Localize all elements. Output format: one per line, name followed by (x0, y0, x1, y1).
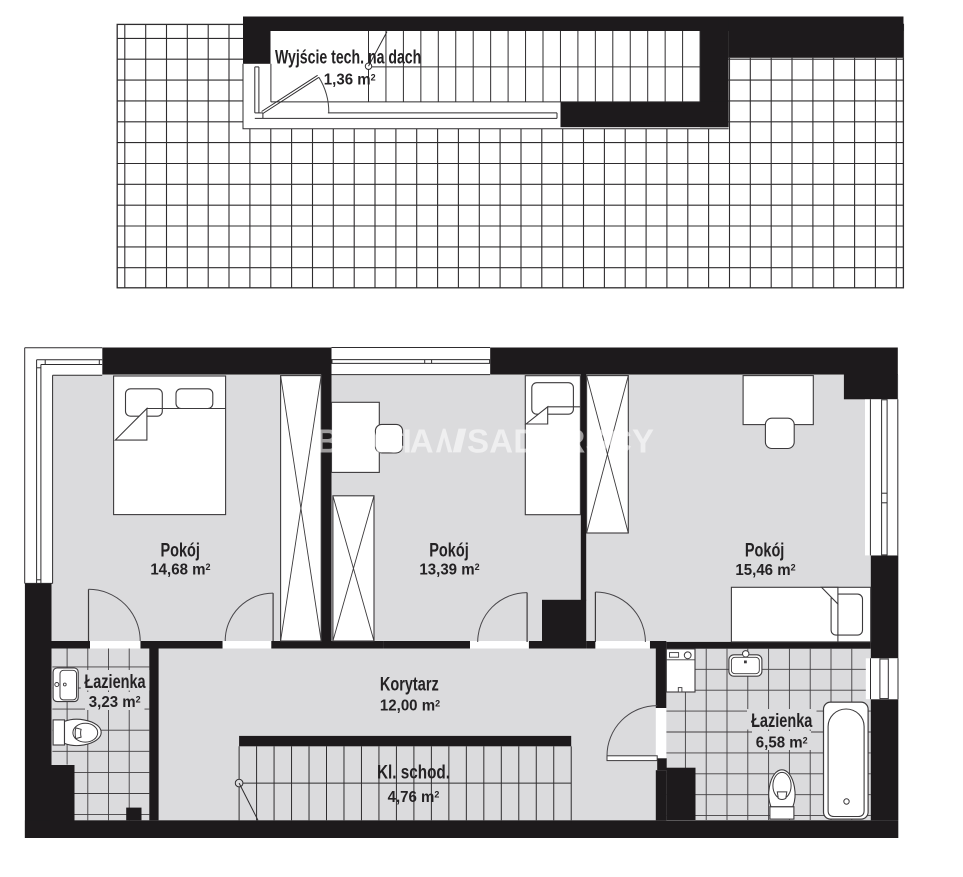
svg-text:Łazienka: Łazienka (751, 709, 813, 732)
svg-text:BRACIA: BRACIA (316, 422, 434, 459)
svg-text:1,36 m2: 1,36 m2 (324, 71, 376, 89)
svg-text:Pokój: Pokój (429, 538, 468, 561)
svg-text:Pokój: Pokój (745, 538, 784, 561)
svg-text:3,23 m2: 3,23 m2 (89, 693, 141, 711)
svg-text:Pokój: Pokój (160, 538, 199, 561)
svg-text:Wyjście tech. na dach: Wyjście tech. na dach (275, 46, 421, 68)
svg-text:Łazienka: Łazienka (84, 670, 146, 693)
svg-text:12,00 m2: 12,00 m2 (380, 697, 440, 715)
svg-text:Kl. schod.: Kl. schod. (377, 761, 450, 783)
svg-text:4,76 m2: 4,76 m2 (388, 788, 440, 806)
svg-text:6,58 m2: 6,58 m2 (756, 734, 808, 752)
svg-text:15,46 m2: 15,46 m2 (735, 561, 795, 579)
svg-text:SADURSCY: SADURSCY (467, 422, 654, 459)
svg-text:Korytarz: Korytarz (380, 672, 439, 695)
svg-text:13,39 m2: 13,39 m2 (419, 561, 479, 579)
svg-text:14,68 m2: 14,68 m2 (150, 561, 210, 579)
